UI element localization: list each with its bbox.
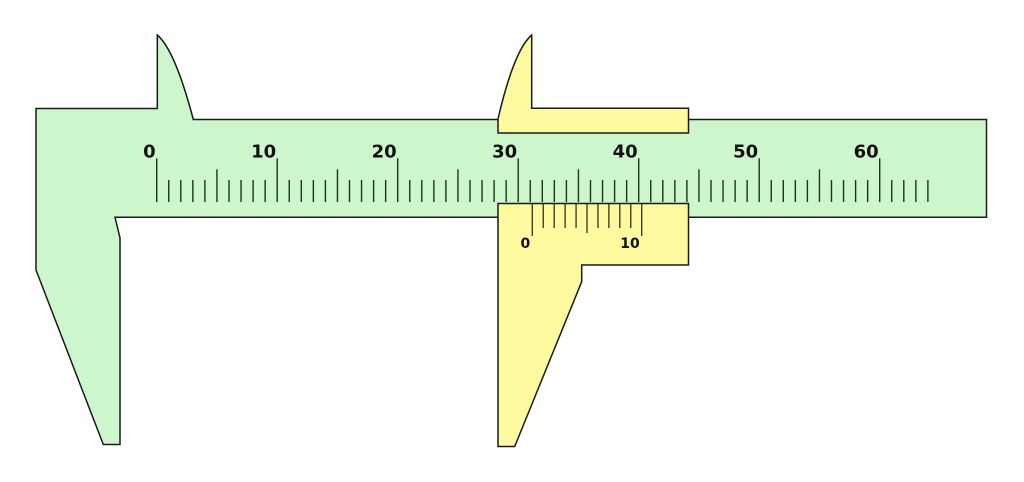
main-scale-label: 10 [251, 142, 276, 163]
vernier-caliper-diagram: 0102030405060 010 [0, 0, 1024, 482]
main-scale-label: 0 [143, 142, 156, 163]
main-scale-label: 60 [854, 142, 879, 163]
main-scale-label: 40 [613, 142, 638, 163]
caliper-svg: 0102030405060 010 [0, 0, 1024, 482]
main-scale-label: 20 [372, 142, 397, 163]
caliper-slider-upper-jaw [498, 35, 689, 133]
main-scale-label: 30 [492, 142, 517, 163]
main-scale-label: 50 [733, 142, 758, 163]
vernier-scale-label: 0 [521, 236, 531, 252]
vernier-scale-label: 10 [620, 236, 640, 252]
